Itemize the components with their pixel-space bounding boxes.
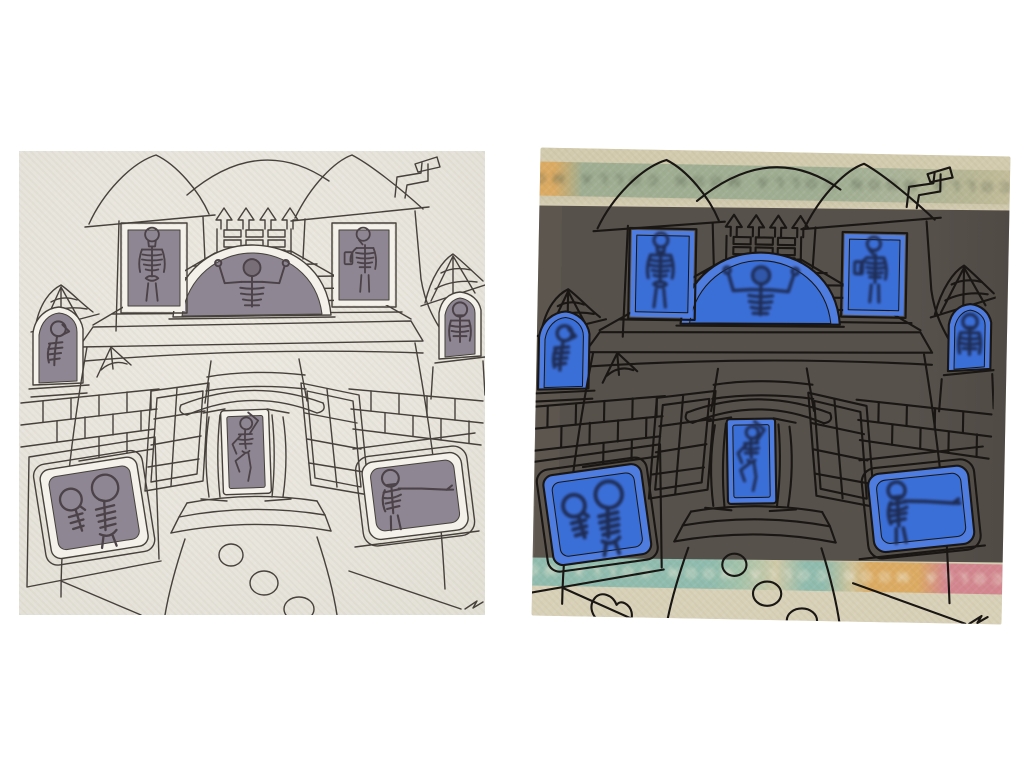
- screenshot-canvas: COLLA MOON COLLA MOON COLLA MOON COLLA M…: [0, 0, 1026, 768]
- haunted-house-light: [19, 151, 485, 615]
- haunted-house-backlit: [532, 153, 999, 624]
- photo-backlit-drawing: COLLA MOON COLLA MOON COLLA MOON COLLA M…: [532, 148, 1011, 625]
- photo-light-drawing: [19, 151, 485, 615]
